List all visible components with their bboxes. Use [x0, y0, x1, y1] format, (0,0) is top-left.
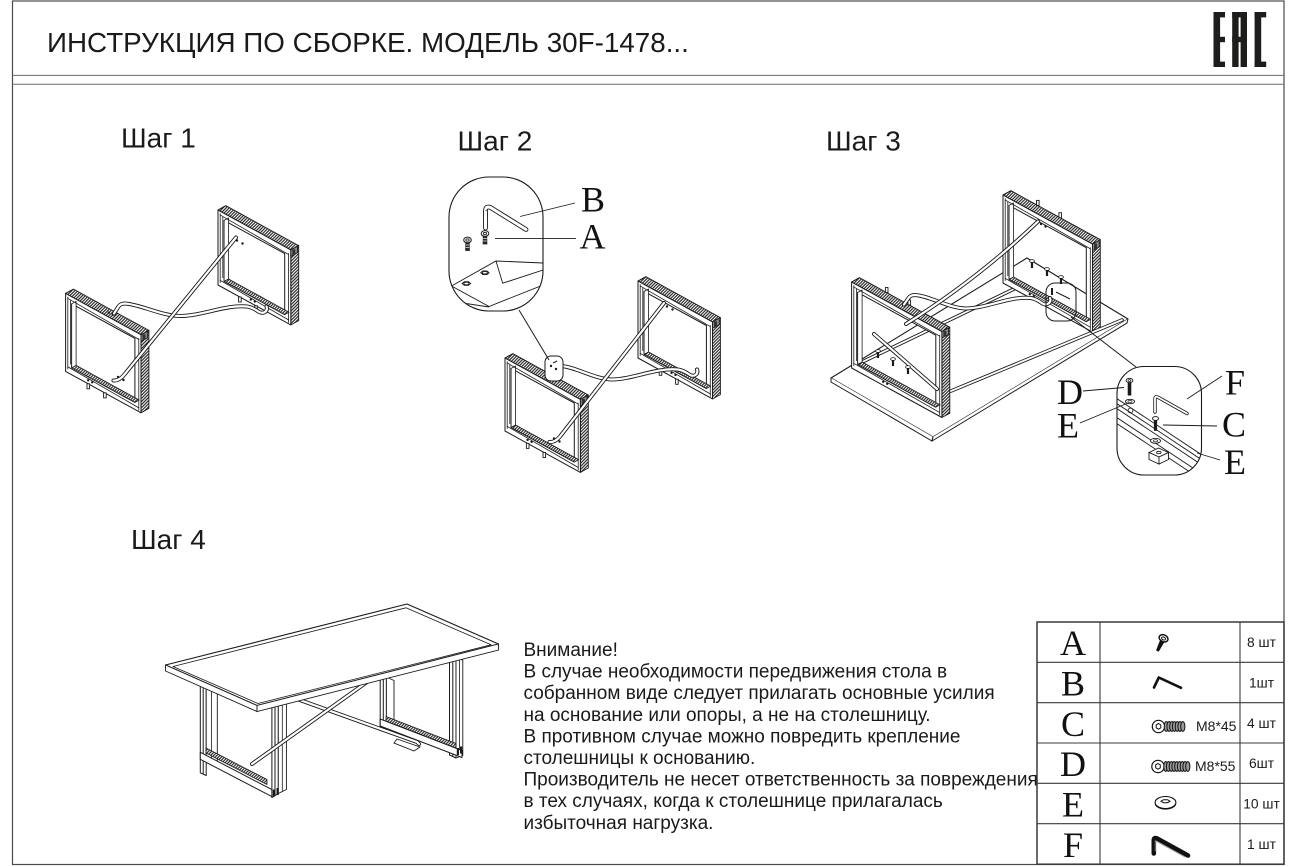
svg-text:Шаг 3: Шаг 3: [826, 126, 901, 157]
svg-text:Производитель не несет ответст: Производитель не несет ответственность з…: [524, 770, 1038, 791]
svg-text:E: E: [1057, 406, 1079, 446]
svg-text:C: C: [1222, 405, 1246, 445]
svg-text:в тех случаях, когда к столешн: в тех случаях, когда к столешнице прилаг…: [524, 791, 943, 812]
svg-text:D: D: [1060, 744, 1086, 784]
svg-text:8 шт: 8 шт: [1247, 635, 1277, 650]
svg-text:Шаг 1: Шаг 1: [121, 123, 196, 154]
svg-text:собранном виде следует прилага: собранном виде следует прилагать основны…: [524, 683, 995, 704]
svg-text:Шаг 4: Шаг 4: [131, 524, 206, 555]
svg-text:ИНСТРУКЦИЯ ПО СБОРКЕ. МОДЕЛЬ 3: ИНСТРУКЦИЯ ПО СБОРКЕ. МОДЕЛЬ 30F-1478...: [47, 27, 689, 58]
svg-text:B: B: [1061, 664, 1085, 704]
svg-text:A: A: [580, 217, 606, 257]
svg-text:1шт: 1шт: [1249, 676, 1275, 691]
svg-text:В случае необходимости передви: В случае необходимости передвижения стол…: [524, 662, 948, 683]
svg-text:B: B: [581, 179, 605, 219]
svg-text:В противном случае можно повре: В противном случае можно повредить крепл…: [524, 726, 961, 747]
svg-text:6шт: 6шт: [1249, 756, 1275, 771]
svg-text:E: E: [1224, 442, 1246, 482]
svg-text:4 шт: 4 шт: [1247, 716, 1277, 731]
svg-text:на основание или опоры, а не н: на основание или опоры, а не на столешни…: [524, 705, 931, 726]
svg-text:столешницы к основанию.: столешницы к основанию.: [524, 748, 756, 769]
svg-text:F: F: [1063, 825, 1083, 865]
svg-text:F: F: [1225, 363, 1245, 403]
svg-text:Шаг 2: Шаг 2: [458, 126, 533, 157]
svg-text:10 шт: 10 шт: [1243, 797, 1280, 812]
svg-text:избыточная нагрузка.: избыточная нагрузка.: [524, 813, 714, 834]
svg-text:E: E: [1062, 785, 1084, 825]
svg-text:M8*45: M8*45: [1196, 718, 1237, 734]
svg-text:C: C: [1061, 704, 1085, 744]
svg-text:Внимание!: Внимание!: [524, 640, 618, 661]
svg-text:M8*55: M8*55: [1195, 758, 1236, 774]
svg-text:A: A: [1060, 623, 1086, 663]
svg-text:1 шт: 1 шт: [1247, 837, 1277, 852]
